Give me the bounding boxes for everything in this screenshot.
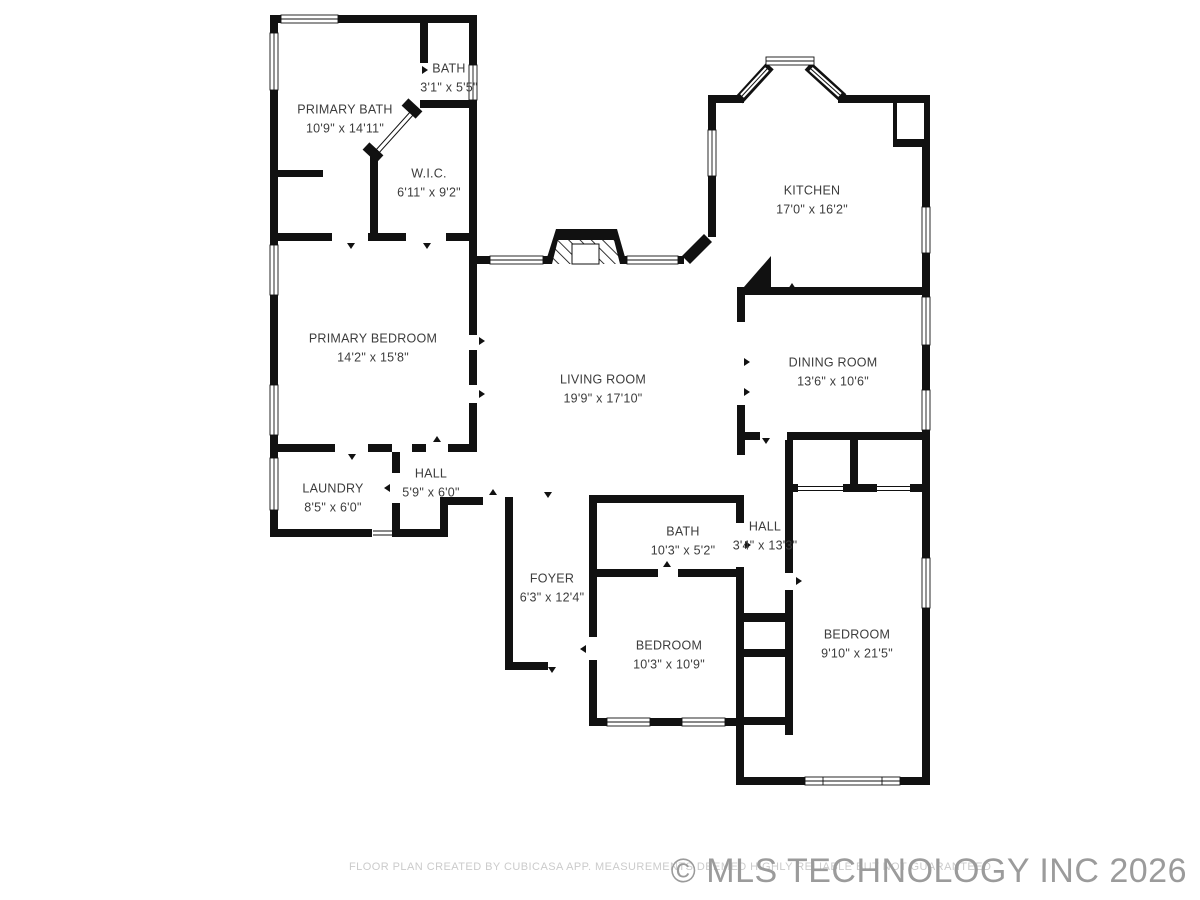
room-label-bath-hall: BATH 10'3" x 5'2": [651, 522, 716, 560]
room-dims: 5'9" x 6'0": [402, 483, 459, 502]
room-dims: 8'5" x 6'0": [302, 498, 363, 517]
room-name: LAUNDRY: [302, 479, 363, 498]
room-name: DINING ROOM: [789, 353, 878, 372]
mls-watermark: © MLS TECHNOLOGY INC 2026: [671, 852, 1187, 891]
fireplace-icon: [545, 229, 627, 264]
room-label-hall-east: HALL 3'4" x 13'3": [733, 517, 798, 555]
room-dims: 10'3" x 5'2": [651, 541, 716, 560]
room-name: BATH: [420, 59, 477, 78]
bay-window: [739, 66, 843, 100]
room-label-living-room: LIVING ROOM 19'9" x 17'10": [560, 370, 646, 408]
room-label-dining-room: DINING ROOM 13'6" x 10'6": [789, 353, 878, 391]
room-dims: 10'9" x 14'11": [297, 119, 392, 138]
room-dims: 6'11" x 9'2": [397, 183, 461, 202]
room-name: BEDROOM: [633, 636, 705, 655]
room-label-primary-bath: PRIMARY BATH 10'9" x 14'11": [297, 100, 392, 138]
room-dims: 17'0" x 16'2": [776, 200, 848, 219]
room-label-laundry: LAUNDRY 8'5" x 6'0": [302, 479, 363, 517]
room-name: KITCHEN: [776, 181, 848, 200]
room-dims: 3'4" x 13'3": [733, 536, 798, 555]
room-name: HALL: [733, 517, 798, 536]
room-label-bedroom-rear: BEDROOM 9'10" x 21'5": [821, 625, 893, 663]
room-label-bath-small: BATH 3'1" x 5'5": [420, 59, 477, 97]
room-label-wic: W.I.C. 6'11" x 9'2": [397, 164, 461, 202]
room-dims: 14'2" x 15'8": [309, 348, 437, 367]
room-name: LIVING ROOM: [560, 370, 646, 389]
room-name: BATH: [651, 522, 716, 541]
room-label-kitchen: KITCHEN 17'0" x 16'2": [776, 181, 848, 219]
room-label-foyer: FOYER 6'3" x 12'4": [520, 569, 585, 607]
room-dims: 6'3" x 12'4": [520, 588, 585, 607]
room-name: PRIMARY BEDROOM: [309, 329, 437, 348]
room-name: BEDROOM: [821, 625, 893, 644]
room-name: FOYER: [520, 569, 585, 588]
room-label-hall-west: HALL 5'9" x 6'0": [402, 464, 459, 502]
room-name: PRIMARY BATH: [297, 100, 392, 119]
room-dims: 19'9" x 17'10": [560, 389, 646, 408]
room-dims: 10'3" x 10'9": [633, 655, 705, 674]
room-dims: 3'1" x 5'5": [420, 78, 477, 97]
room-name: HALL: [402, 464, 459, 483]
floor-plan-canvas: [0, 0, 1200, 900]
room-name: W.I.C.: [397, 164, 461, 183]
floor-plan-page: PRIMARY BATH 10'9" x 14'11" BATH 3'1" x …: [0, 0, 1200, 900]
room-label-bedroom-front: BEDROOM 10'3" x 10'9": [633, 636, 705, 674]
room-dims: 13'6" x 10'6": [789, 372, 878, 391]
room-dims: 9'10" x 21'5": [821, 644, 893, 663]
kitchen-alcove: [897, 103, 924, 139]
room-label-primary-bedroom: PRIMARY BEDROOM 14'2" x 15'8": [309, 329, 437, 367]
